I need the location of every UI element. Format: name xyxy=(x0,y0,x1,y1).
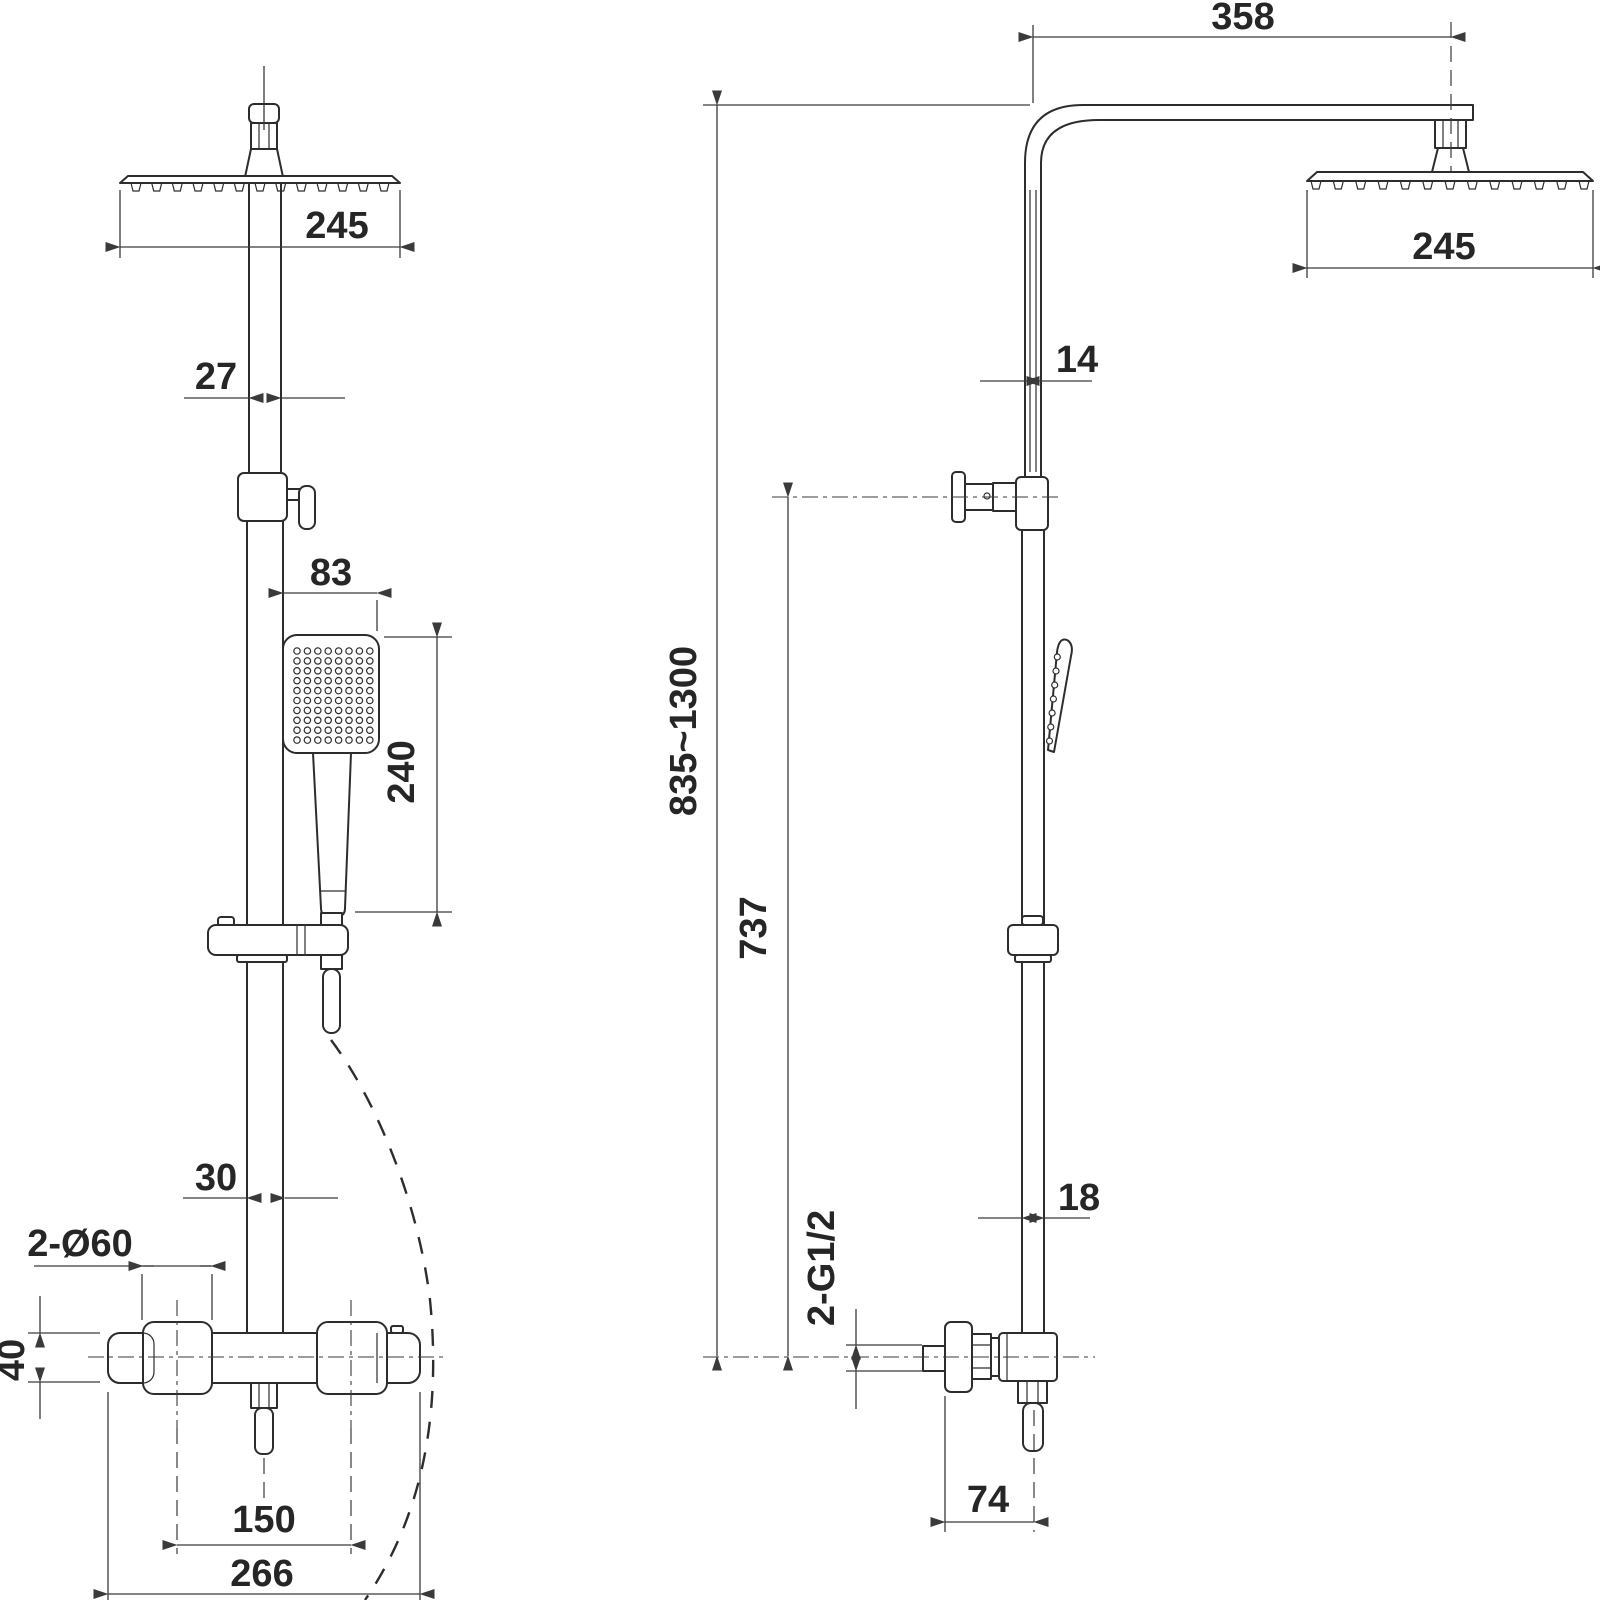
dim-label-side-bracket-height: 737 xyxy=(733,896,775,959)
front-slider-bracket xyxy=(238,473,315,529)
dim-label-side-total-height: 835~1300 xyxy=(663,646,705,816)
dim-label-side-pipe-lower: 18 xyxy=(1058,1177,1100,1219)
dim-label-side-arm-reach: 358 xyxy=(1211,0,1274,38)
dim-side-head-depth: 245 xyxy=(1307,190,1593,278)
dim-label-side-pipe-upper: 14 xyxy=(1056,339,1098,381)
dim-label-side-inlet-thread: 2-G1/2 xyxy=(801,1210,843,1326)
side-lock-knob xyxy=(952,472,1048,530)
dim-label-front-pipe-lower: 30 xyxy=(195,1157,237,1199)
dim-side-bracket-height: 737 xyxy=(733,497,788,1356)
nozzle-teeth xyxy=(1311,181,1589,189)
side-head-connector xyxy=(1432,22,1469,176)
side-mixer-valve xyxy=(703,1322,1095,1532)
dim-side-valve-depth: 74 xyxy=(945,1396,1034,1532)
dim-front-valve-height: 40 xyxy=(0,1296,100,1419)
side-shower-arm xyxy=(1025,105,1473,215)
nozzle-teeth xyxy=(131,183,389,191)
dim-label-front-valve-width: 266 xyxy=(230,1553,293,1595)
dim-label-front-hand-shower-length: 240 xyxy=(381,740,423,803)
dim-label-front-pipe-upper: 27 xyxy=(195,356,237,398)
dim-label-side-valve-depth: 74 xyxy=(967,1479,1009,1521)
shower-hose xyxy=(331,1040,433,1600)
dim-front-head-width: 245 xyxy=(120,190,400,258)
dim-label-front-inlet-spacing: 150 xyxy=(232,1499,295,1541)
dim-front-pipe-upper: 27 xyxy=(184,356,345,398)
side-holder-bracket xyxy=(1008,916,1058,962)
dim-label-front-valve-height: 40 xyxy=(0,1339,33,1381)
dim-label-front-mount-holes: 2-Ø60 xyxy=(27,1223,133,1265)
dim-side-arm-reach: 358 xyxy=(1033,0,1451,103)
dim-side-pipe-upper: 14 xyxy=(980,339,1098,381)
side-shower-head-plate xyxy=(1307,172,1593,189)
front-shower-head-plate xyxy=(120,176,400,191)
front-riser-pipe xyxy=(247,177,283,1333)
front-view: 245 27 83 240 30 xyxy=(0,66,452,1600)
dim-side-pipe-lower: 18 xyxy=(978,1177,1100,1219)
side-riser-pipe xyxy=(1022,190,1044,1381)
dim-side-total-height: 835~1300 xyxy=(663,105,1030,1356)
front-head-connector xyxy=(245,66,283,177)
front-hand-shower xyxy=(283,635,379,926)
dim-label-front-hand-shower-width: 83 xyxy=(310,552,352,594)
front-holder-bracket xyxy=(208,917,348,1033)
dim-label-front-head-width: 245 xyxy=(305,205,368,247)
dim-front-hand-shower-width: 83 xyxy=(283,552,377,631)
side-hand-shower-paddle xyxy=(1047,640,1072,753)
dim-label-side-head-depth: 245 xyxy=(1412,226,1475,268)
shower-system-drawing: 245 27 83 240 30 xyxy=(0,0,1600,1600)
technical-drawing-page: 245 27 83 240 30 xyxy=(0,0,1600,1600)
dim-front-mount-holes: 2-Ø60 xyxy=(27,1223,212,1320)
side-view: 358 245 14 835~1300 737 18 xyxy=(663,0,1593,1532)
dim-front-pipe-lower: 30 xyxy=(183,1157,338,1199)
dim-side-inlet-thread: 2-G1/2 xyxy=(801,1210,922,1409)
front-mixer-valve xyxy=(88,1300,448,1510)
